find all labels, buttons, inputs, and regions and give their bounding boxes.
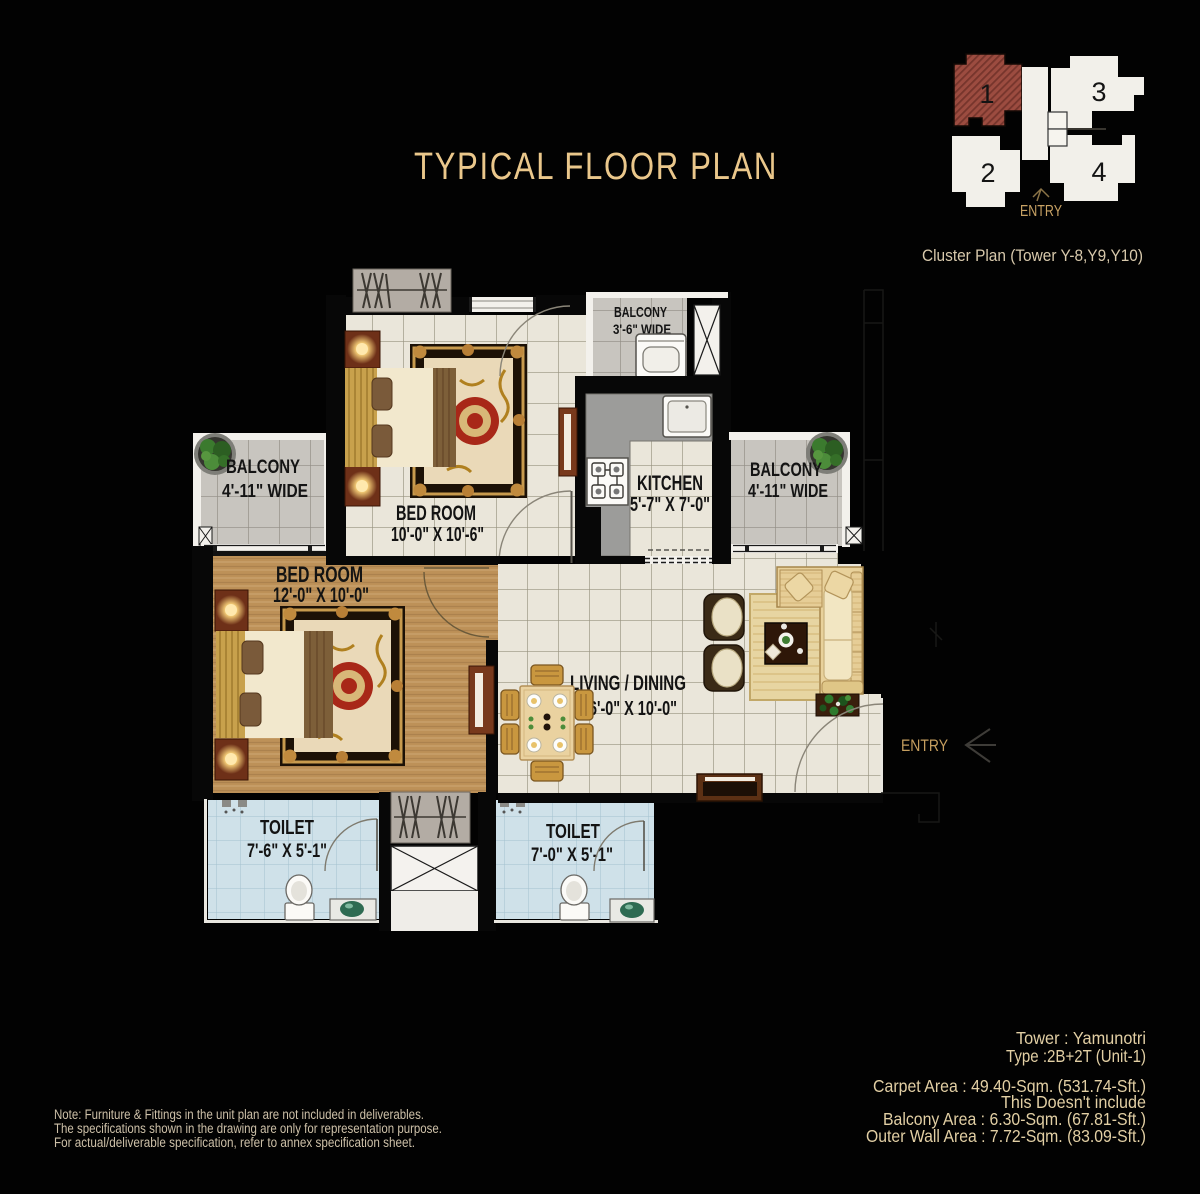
svg-text:5'-7" X 7'-0": 5'-7" X 7'-0"	[630, 494, 710, 516]
svg-text:4'-11" WIDE: 4'-11" WIDE	[748, 481, 828, 501]
svg-text:10'-0" X 10'-6": 10'-0" X 10'-6"	[391, 524, 484, 546]
svg-text:4: 4	[1091, 157, 1106, 187]
svg-text:7'-0" X 5'-1": 7'-0" X 5'-1"	[531, 845, 613, 866]
svg-text:6'-0" X 10'-0": 6'-0" X 10'-0"	[589, 698, 677, 720]
svg-text:The specifications shown in th: The specifications shown in the drawing …	[54, 1121, 442, 1136]
svg-text:BALCONY: BALCONY	[614, 304, 667, 321]
svg-text:ENTRY: ENTRY	[1020, 203, 1062, 220]
svg-text:BED ROOM: BED ROOM	[396, 502, 476, 525]
svg-text:Note: Furniture & Fittings in: Note: Furniture & Fittings in the unit p…	[54, 1107, 424, 1122]
svg-text:TOILET: TOILET	[260, 817, 314, 839]
svg-text:Cluster Plan (Tower Y-8,Y9,Y10: Cluster Plan (Tower Y-8,Y9,Y10)	[922, 246, 1143, 265]
svg-text:Outer Wall Area : 7.72-Sqm. (8: Outer Wall Area : 7.72-Sqm. (83.09-Sft.)	[866, 1126, 1146, 1146]
svg-text:Type :2B+2T (Unit-1): Type :2B+2T (Unit-1)	[1006, 1046, 1146, 1066]
svg-text:3: 3	[1091, 77, 1106, 107]
svg-text:For actual/deliverable specifi: For actual/deliverable specification, re…	[54, 1135, 415, 1150]
svg-text:ENTRY: ENTRY	[901, 736, 948, 755]
svg-text:2: 2	[980, 158, 995, 188]
svg-text:KITCHEN: KITCHEN	[637, 472, 703, 495]
svg-text:Tower : Yamunotri: Tower : Yamunotri	[1016, 1028, 1146, 1048]
svg-text:BALCONY: BALCONY	[226, 457, 300, 478]
svg-text:BALCONY: BALCONY	[750, 460, 822, 481]
svg-text:4'-11" WIDE: 4'-11" WIDE	[222, 481, 308, 501]
svg-text:1: 1	[979, 79, 994, 109]
svg-text:TYPICAL FLOOR PLAN: TYPICAL FLOOR PLAN	[414, 146, 778, 188]
svg-text:12'-0" X 10'-0": 12'-0" X 10'-0"	[273, 584, 369, 607]
svg-text:7'-6" X 5'-1": 7'-6" X 5'-1"	[247, 841, 327, 862]
svg-text:TOILET: TOILET	[546, 821, 600, 843]
